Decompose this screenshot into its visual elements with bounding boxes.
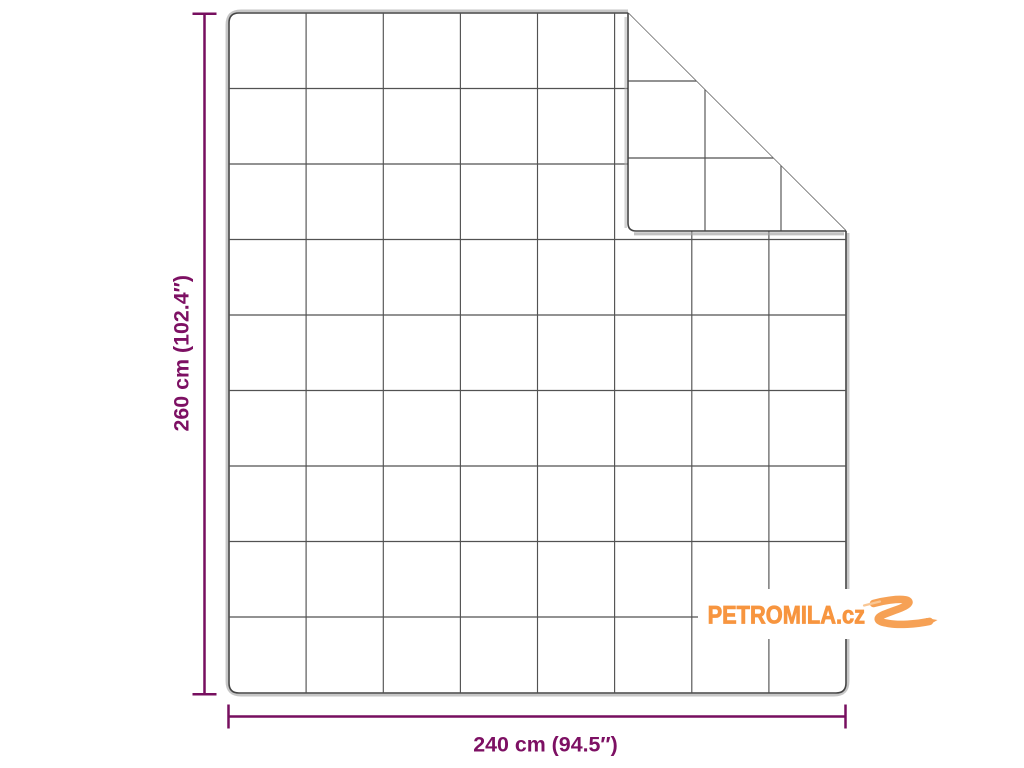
svg-text:PETROMILA.cz: PETROMILA.cz bbox=[708, 602, 865, 630]
svg-text:260 cm (102.4″): 260 cm (102.4″) bbox=[170, 275, 194, 432]
svg-text:240 cm (94.5″): 240 cm (94.5″) bbox=[473, 733, 618, 757]
